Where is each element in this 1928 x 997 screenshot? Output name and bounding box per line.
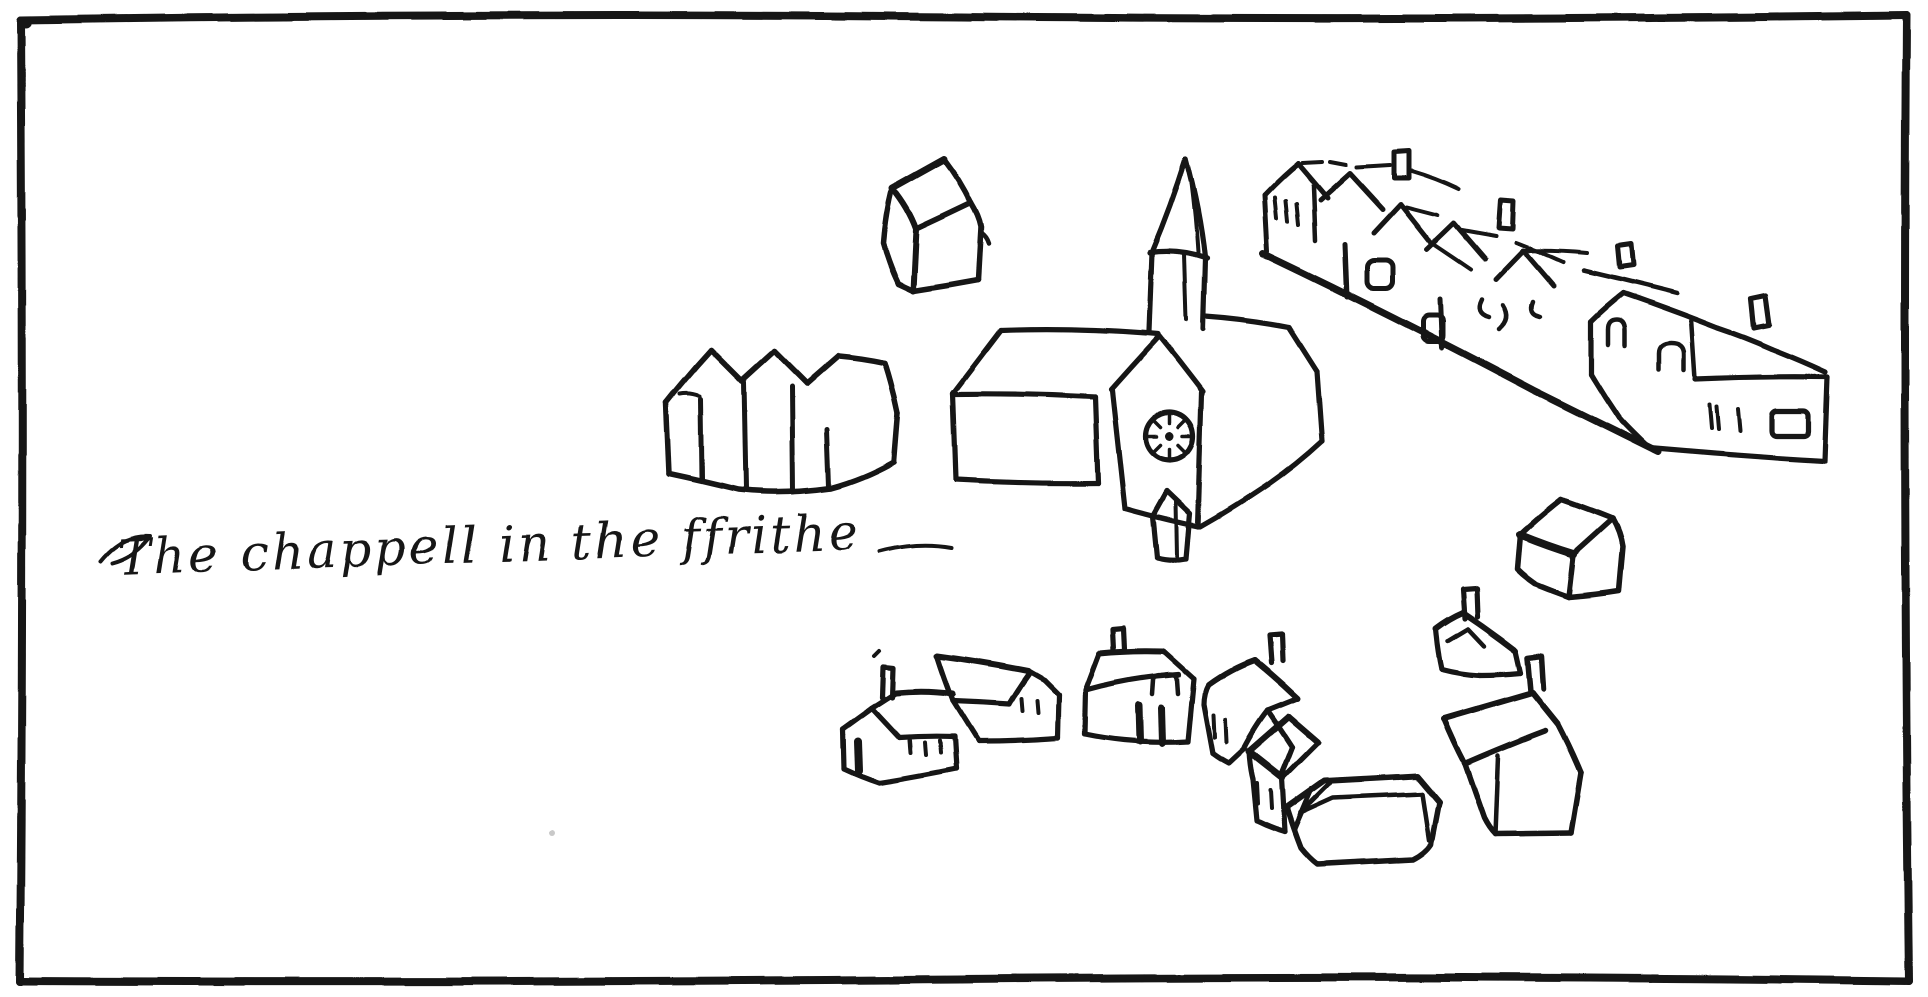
stray-ink-speck — [549, 830, 555, 836]
long-house-west — [843, 651, 956, 783]
window — [1367, 261, 1393, 289]
caption-tail-flourish — [880, 546, 952, 552]
chimney — [1617, 244, 1633, 267]
caption-handwriting: The chappell in the ffrithe — [100, 503, 952, 587]
triple-gabled-cottages — [666, 350, 898, 492]
church-spire — [1150, 158, 1207, 258]
window — [1608, 319, 1625, 345]
church-tower-gable — [1111, 336, 1203, 527]
house-with-door — [1085, 628, 1194, 743]
chimney — [1751, 296, 1769, 328]
window — [1772, 411, 1809, 436]
church-tower — [1149, 252, 1205, 331]
south-east-house — [1444, 656, 1581, 834]
box-house — [1287, 776, 1439, 864]
church-nave — [953, 329, 1158, 483]
chimney — [1528, 656, 1544, 692]
chimney — [1394, 151, 1409, 178]
window — [1659, 343, 1684, 370]
village-sketch: The chappell in the ffrithe — [0, 0, 1928, 997]
caption-text: The chappell in the ffrithe — [116, 503, 862, 587]
small-house-southeast — [1436, 589, 1521, 675]
chimney — [1113, 628, 1125, 650]
chimney — [1269, 634, 1282, 663]
small-house-north — [883, 159, 989, 291]
chimney — [1499, 200, 1514, 229]
border-frame — [20, 15, 1909, 982]
door — [858, 742, 859, 771]
sketch-map-page: The chappell in the ffrithe — [0, 0, 1928, 997]
church-chancel — [1200, 316, 1322, 527]
clock-face — [1146, 412, 1194, 460]
small-house-east — [1517, 499, 1623, 597]
barn-house — [937, 656, 1059, 741]
